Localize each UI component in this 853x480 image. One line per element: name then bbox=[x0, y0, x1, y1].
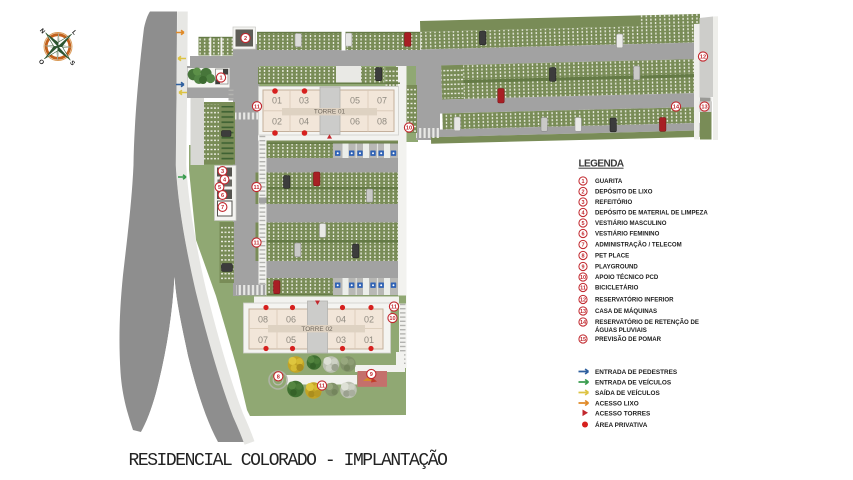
svg-text:2: 2 bbox=[244, 36, 247, 42]
svg-text:ACESSO TORRES: ACESSO TORRES bbox=[595, 411, 651, 418]
svg-text:REFEITÓRIO: REFEITÓRIO bbox=[595, 198, 633, 206]
svg-text:PLAYGROUND: PLAYGROUND bbox=[595, 264, 638, 271]
svg-text:2: 2 bbox=[581, 190, 584, 196]
svg-text:10: 10 bbox=[580, 275, 586, 281]
svg-text:14: 14 bbox=[673, 105, 680, 111]
svg-text:10: 10 bbox=[406, 126, 412, 132]
svg-text:05: 05 bbox=[286, 335, 296, 345]
svg-text:SAÍDA DE VEÍCULOS: SAÍDA DE VEÍCULOS bbox=[595, 388, 660, 397]
svg-text:7: 7 bbox=[581, 243, 584, 249]
svg-text:ÁGUAS PLUVIAIS: ÁGUAS PLUVIAIS bbox=[595, 327, 647, 334]
svg-text:05: 05 bbox=[350, 95, 360, 105]
svg-text:LEGENDA: LEGENDA bbox=[579, 159, 624, 170]
svg-text:13: 13 bbox=[580, 309, 586, 315]
svg-text:02: 02 bbox=[272, 117, 282, 127]
svg-text:CASA DE MÁQUINAS: CASA DE MÁQUINAS bbox=[595, 308, 657, 315]
svg-text:RESIDENCIAL COLORADO - IMPLANT: RESIDENCIAL COLORADO - IMPLANTAÇÃO bbox=[129, 450, 448, 471]
svg-text:5: 5 bbox=[581, 221, 584, 227]
svg-text:11: 11 bbox=[254, 241, 260, 247]
svg-text:11: 11 bbox=[319, 384, 325, 390]
svg-text:12: 12 bbox=[580, 298, 586, 304]
svg-text:6: 6 bbox=[581, 232, 584, 238]
svg-text:BICICLETÁRIO: BICICLETÁRIO bbox=[595, 285, 639, 292]
svg-text:8: 8 bbox=[581, 254, 584, 260]
svg-text:01: 01 bbox=[272, 95, 282, 105]
svg-text:07: 07 bbox=[377, 95, 387, 105]
svg-text:ENTRADA DE PEDESTRES: ENTRADA DE PEDESTRES bbox=[595, 369, 678, 376]
svg-text:02: 02 bbox=[364, 314, 374, 324]
svg-text:PET PLACE: PET PLACE bbox=[595, 253, 629, 260]
svg-text:03: 03 bbox=[336, 335, 346, 345]
svg-text:12: 12 bbox=[700, 55, 706, 61]
svg-text:PREVISÃO DE POMAR: PREVISÃO DE POMAR bbox=[595, 336, 662, 343]
svg-text:ENTRADA DE VEÍCULOS: ENTRADA DE VEÍCULOS bbox=[595, 378, 672, 387]
svg-text:08: 08 bbox=[377, 117, 387, 127]
svg-text:9: 9 bbox=[581, 265, 584, 271]
svg-text:06: 06 bbox=[286, 314, 296, 324]
svg-text:9: 9 bbox=[370, 372, 373, 378]
svg-text:3: 3 bbox=[221, 169, 224, 175]
svg-text:15: 15 bbox=[580, 337, 586, 343]
svg-text:14: 14 bbox=[580, 320, 587, 326]
svg-text:VESTIÁRIO FEMININO: VESTIÁRIO FEMININO bbox=[595, 231, 660, 238]
svg-text:RESERVATÓRIO DE RETENÇÃO DE: RESERVATÓRIO DE RETENÇÃO DE bbox=[595, 318, 699, 326]
svg-text:1: 1 bbox=[581, 179, 584, 185]
svg-text:DEPÓSITO DE LIXO: DEPÓSITO DE LIXO bbox=[595, 188, 653, 196]
svg-text:6: 6 bbox=[221, 193, 224, 199]
svg-text:APOIO TÉCNICO PCD: APOIO TÉCNICO PCD bbox=[595, 273, 659, 281]
svg-text:04: 04 bbox=[299, 117, 309, 127]
svg-text:06: 06 bbox=[350, 117, 360, 127]
svg-text:ÁREA PRIVATIVA: ÁREA PRIVATIVA bbox=[595, 420, 648, 429]
svg-text:11: 11 bbox=[391, 305, 397, 311]
svg-text:8: 8 bbox=[277, 374, 280, 380]
svg-text:5: 5 bbox=[218, 185, 221, 191]
svg-text:TORRE 02: TORRE 02 bbox=[301, 326, 333, 333]
svg-text:11: 11 bbox=[580, 286, 586, 292]
svg-text:11: 11 bbox=[254, 185, 260, 191]
svg-text:VESTIÁRIO MASCULINO: VESTIÁRIO MASCULINO bbox=[595, 220, 667, 227]
svg-text:11: 11 bbox=[254, 104, 260, 110]
svg-text:07: 07 bbox=[258, 335, 268, 345]
svg-text:GUARITA: GUARITA bbox=[595, 178, 623, 185]
svg-text:3: 3 bbox=[581, 200, 584, 206]
svg-text:DEPÓSITO DE MATERIAL DE LIMPEZ: DEPÓSITO DE MATERIAL DE LIMPEZA bbox=[595, 209, 708, 217]
svg-text:04: 04 bbox=[336, 314, 346, 324]
svg-text:10: 10 bbox=[389, 316, 395, 322]
svg-text:01: 01 bbox=[364, 335, 374, 345]
svg-text:RESERVATÓRIO INFERIOR: RESERVATÓRIO INFERIOR bbox=[595, 296, 674, 304]
svg-text:1: 1 bbox=[219, 76, 222, 82]
svg-text:ADMINISTRAÇÃO / TELECOM: ADMINISTRAÇÃO / TELECOM bbox=[595, 242, 682, 249]
svg-text:08: 08 bbox=[258, 314, 268, 324]
svg-text:ACESSO LIXO: ACESSO LIXO bbox=[595, 401, 639, 408]
svg-text:13: 13 bbox=[701, 105, 707, 111]
svg-text:7: 7 bbox=[221, 205, 224, 211]
svg-text:TORRE 01: TORRE 01 bbox=[314, 109, 346, 116]
svg-text:03: 03 bbox=[299, 95, 309, 105]
